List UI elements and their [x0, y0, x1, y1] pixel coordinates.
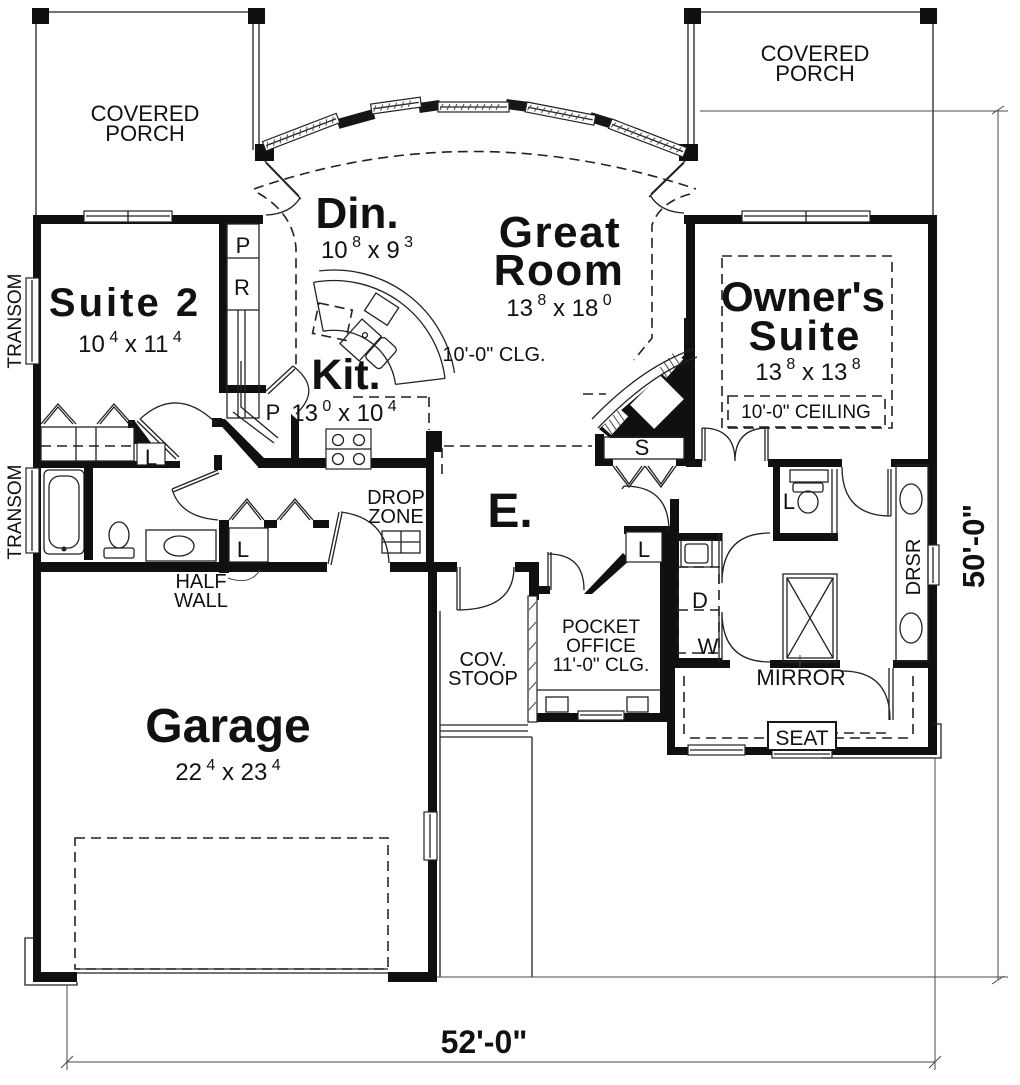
- svg-text:22 4 x 23 4: 22 4 x 23 4: [175, 757, 281, 786]
- svg-text:13 0 x 10 4: 13 0 x 10 4: [291, 398, 397, 427]
- svg-text:STOOP: STOOP: [448, 668, 518, 690]
- svg-text:Room: Room: [494, 246, 625, 295]
- svg-text:TRANSOM: TRANSOM: [5, 274, 26, 369]
- svg-text:52'-0": 52'-0": [441, 1024, 528, 1060]
- svg-text:W: W: [698, 634, 719, 659]
- svg-text:MIRROR: MIRROR: [756, 665, 845, 690]
- svg-text:50'-0": 50'-0": [956, 504, 991, 588]
- svg-text:10 8 x 9 3: 10 8 x 9 3: [321, 234, 413, 264]
- svg-text:DRSR: DRSR: [903, 539, 925, 596]
- svg-text:11'-0" CLG.: 11'-0" CLG.: [553, 655, 650, 676]
- svg-text:L: L: [783, 489, 795, 514]
- svg-text:Kit.: Kit.: [311, 351, 380, 399]
- svg-text:P: P: [236, 233, 251, 258]
- svg-text:E.: E.: [487, 485, 532, 538]
- svg-text:TRANSOM: TRANSOM: [5, 465, 26, 560]
- svg-text:10'-0" CLG.: 10'-0" CLG.: [442, 344, 545, 366]
- svg-text:Suite 2: Suite 2: [49, 281, 201, 325]
- svg-text:L: L: [145, 445, 157, 470]
- svg-text:13 8 x 18 0: 13 8 x 18 0: [506, 292, 612, 322]
- svg-text:13 8 x 13 8: 13 8 x 13 8: [755, 356, 861, 386]
- svg-text:Suite: Suite: [749, 312, 862, 359]
- svg-text:L: L: [638, 537, 650, 562]
- svg-text:10 4 x 11 4: 10 4 x 11 4: [78, 329, 182, 358]
- svg-text:OFFICE: OFFICE: [566, 636, 636, 657]
- svg-text:L: L: [237, 537, 249, 562]
- svg-text:D: D: [692, 588, 708, 613]
- svg-text:SEAT: SEAT: [775, 727, 828, 750]
- svg-text:PORCH: PORCH: [105, 121, 184, 146]
- svg-text:WALL: WALL: [174, 590, 228, 612]
- svg-text:PORCH: PORCH: [775, 61, 854, 86]
- svg-text:Garage: Garage: [145, 700, 310, 753]
- svg-text:R: R: [234, 275, 250, 300]
- svg-text:P: P: [266, 400, 281, 425]
- svg-text:Din.: Din.: [315, 189, 398, 238]
- svg-text:S: S: [635, 435, 650, 460]
- svg-text:POCKET: POCKET: [562, 617, 641, 638]
- svg-text:10'-0" CEILING: 10'-0" CEILING: [741, 402, 871, 423]
- svg-text:ZONE: ZONE: [368, 506, 424, 528]
